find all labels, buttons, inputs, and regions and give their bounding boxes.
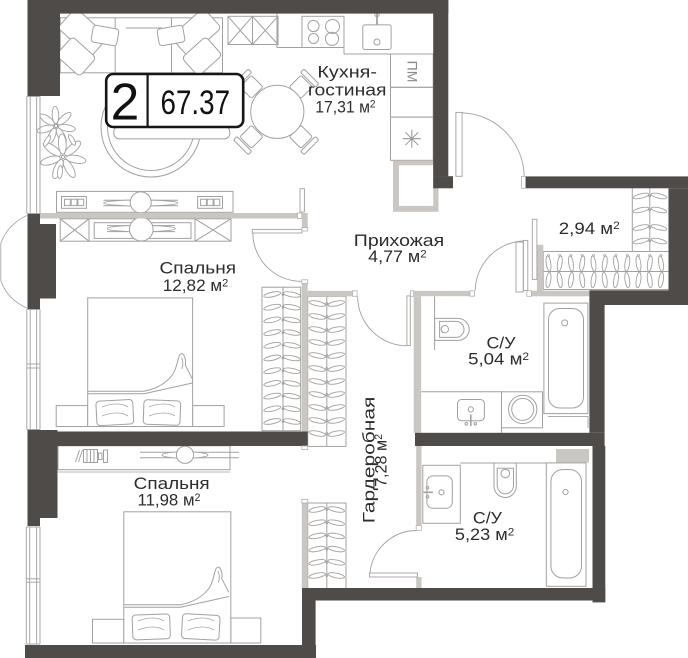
svg-text:Спальня: Спальня [160,259,237,277]
svg-text:С/У: С/У [473,510,503,528]
svg-text:12,82 м2: 12,82 м2 [163,277,229,295]
svg-text:5,23 м2: 5,23 м2 [455,526,514,544]
svg-text:Кухня-: Кухня- [317,63,377,81]
svg-text:17,31 м2: 17,31 м2 [315,98,375,116]
svg-text:4,77 м2: 4,77 м2 [368,248,427,266]
svg-text:67.37: 67.37 [161,84,231,122]
svg-text:7,28 м2: 7,28 м2 [373,434,391,487]
svg-text:5,04 м2: 5,04 м2 [468,351,529,369]
svg-text:ПМ: ПМ [405,61,421,83]
svg-text:2,94 м2: 2,94 м2 [559,220,620,238]
svg-text:2: 2 [111,73,140,131]
svg-text:11,98 м2: 11,98 м2 [138,492,201,510]
svg-text:Спальня: Спальня [134,475,210,493]
svg-text:Прихожая: Прихожая [354,232,444,250]
svg-text:гостиная: гостиная [308,82,387,100]
